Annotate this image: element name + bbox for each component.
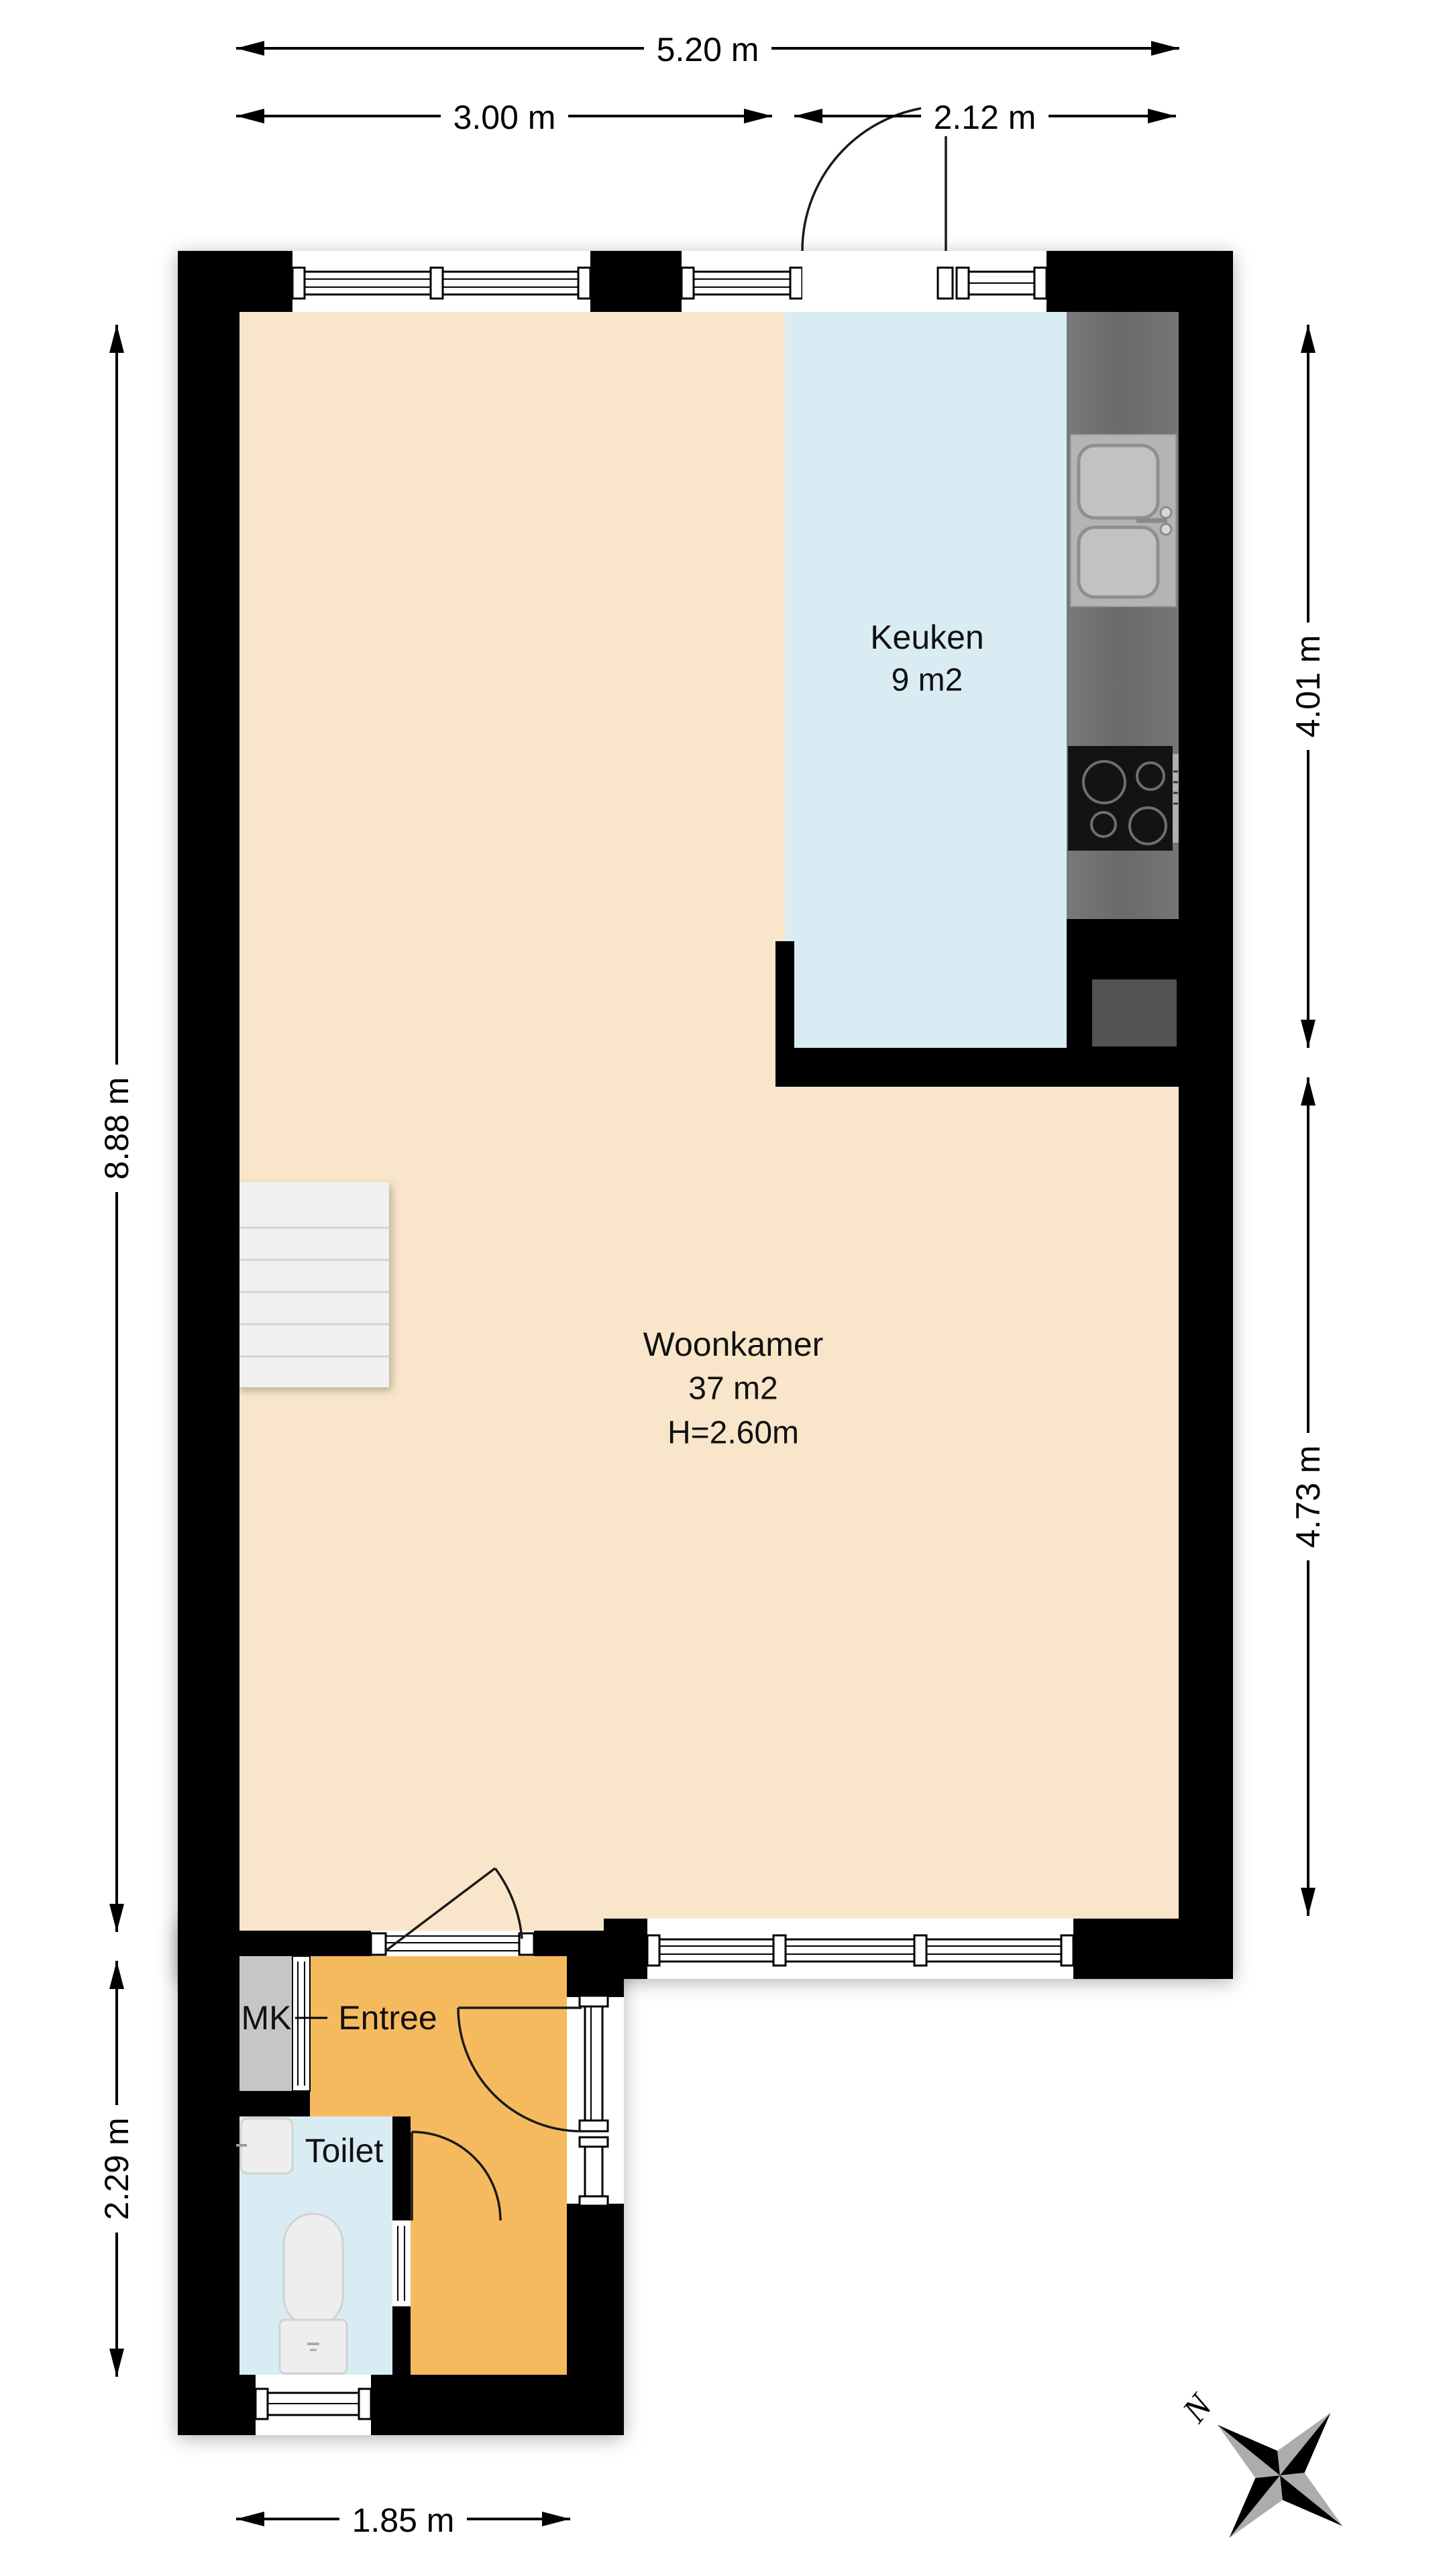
- sink-bowl-top: [1079, 445, 1158, 518]
- toilet-cistern: [280, 2320, 347, 2373]
- dimension-label: 8.88 m: [98, 1077, 136, 1180]
- compass-star: [1167, 2362, 1393, 2576]
- woonkamer-ceiling-height: H=2.60m: [667, 1415, 799, 1451]
- back-door-opening: [802, 251, 957, 312]
- staircase: [236, 1182, 389, 1387]
- dimension-label: 5.20 m: [657, 31, 759, 68]
- stove-control-strip: [1173, 754, 1179, 843]
- dimension-left-lower: 2.29 m: [97, 1961, 137, 2377]
- entree-right-wall-upper: [567, 1956, 624, 1997]
- entree-label: Entree: [338, 1999, 437, 2037]
- window-top-2: [682, 251, 802, 312]
- kitchen-counter: [1067, 312, 1179, 919]
- keuken-label: Keuken: [870, 619, 984, 656]
- kitchen-stub-wall: [775, 941, 794, 1048]
- woonkamer-area: 37 m2: [688, 1371, 777, 1407]
- living-entree-wall-right: [534, 1931, 604, 1956]
- stove: [1068, 746, 1179, 851]
- dimension-right-lower: 4.73 m: [1288, 1077, 1328, 1916]
- dimension-top-right: 2.12 m: [794, 96, 1176, 136]
- dimension-label: 4.73 m: [1289, 1446, 1327, 1548]
- compass-rose: N: [1132, 2334, 1393, 2576]
- toilet-label: Toilet: [305, 2132, 384, 2169]
- front-door-frame: [567, 1996, 624, 2131]
- window-living-south: [647, 1919, 1073, 1979]
- entry-block-bottom-wall: [178, 2375, 624, 2435]
- dimension-left-upper: 8.88 m: [97, 325, 137, 1932]
- right-wall: [1179, 251, 1233, 1979]
- bottom-wall-corner: [1073, 1919, 1233, 1979]
- floorplan-page: 5.20 m 3.00 m 2.12 m 8.88 m 2.29 m 4.01 …: [0, 0, 1449, 2576]
- toilet-door-frame: [392, 2220, 411, 2306]
- kitchen-shaft: [1092, 979, 1177, 1046]
- dimension-label: 2.12 m: [934, 99, 1036, 136]
- toilet-hand-basin: [236, 2118, 292, 2173]
- mk-label: MK: [241, 1999, 292, 2037]
- window-entree-side: [567, 2137, 624, 2206]
- window-toilet-south: [256, 2375, 371, 2435]
- stove-body: [1068, 746, 1173, 851]
- dimension-right-upper: 4.01 m: [1288, 325, 1328, 1048]
- dimension-label: 3.00 m: [453, 99, 556, 136]
- window-top-1: [292, 251, 590, 312]
- compass-north-label: N: [1175, 2386, 1222, 2430]
- dimension-label: 2.29 m: [98, 2118, 136, 2220]
- dimension-bottom: 1.85 m: [236, 2499, 570, 2539]
- dimension-top-left: 3.00 m: [236, 96, 772, 136]
- keuken-area: 9 m2: [892, 663, 963, 698]
- left-wall: [178, 251, 239, 2435]
- window-top-3: [957, 251, 1046, 312]
- dimension-label: 1.85 m: [352, 2502, 455, 2539]
- mk-closet-door: [292, 1956, 310, 2091]
- dimension-label: 4.01 m: [1289, 635, 1327, 738]
- mk-toilet-wall: [239, 2091, 310, 2116]
- toilet-entree-wall-lower: [392, 2306, 411, 2375]
- woonkamer-label: Woonkamer: [643, 1326, 824, 1363]
- living-entree-wall-left: [239, 1931, 371, 1956]
- dimension-top-total: 5.20 m: [236, 28, 1179, 68]
- floorplan-drawing: 5.20 m 3.00 m 2.12 m 8.88 m 2.29 m 4.01 …: [0, 0, 1449, 2576]
- toilet-entree-wall-upper: [392, 2116, 411, 2220]
- toilet-fixture: [280, 2214, 347, 2373]
- sink-bowl-bottom: [1079, 527, 1158, 597]
- toilet-bowl: [284, 2214, 343, 2326]
- top-wall-pier: [590, 251, 682, 312]
